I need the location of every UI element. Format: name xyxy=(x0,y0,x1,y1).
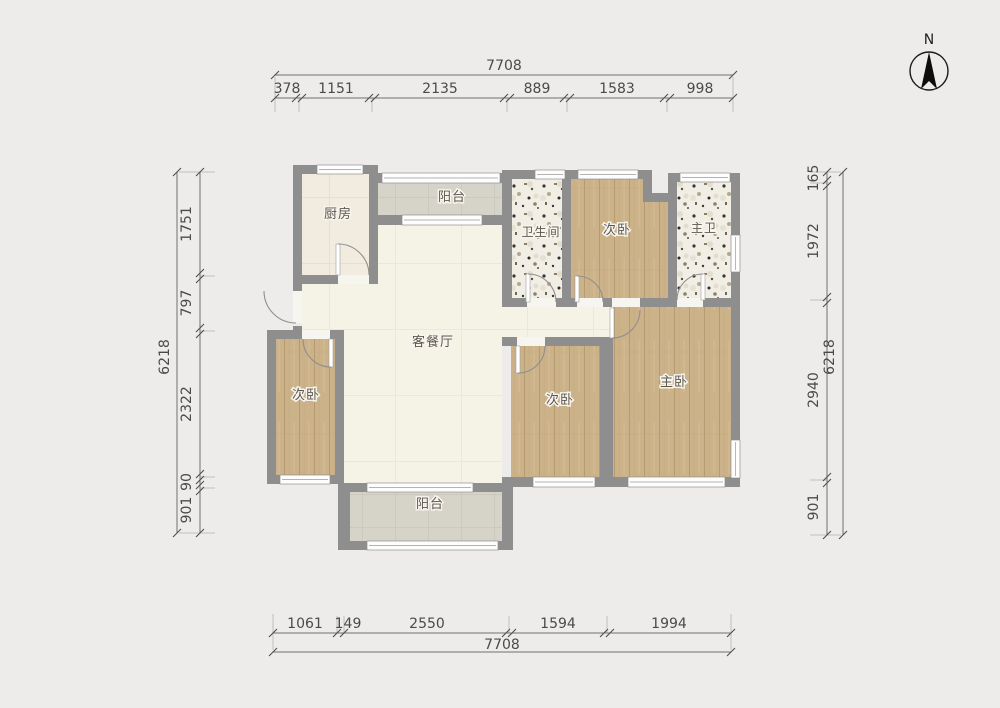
bedroom-top-door-opening xyxy=(577,298,603,307)
kitchen-door-leaf xyxy=(336,244,340,275)
north-arrow-icon xyxy=(921,52,937,89)
bathroom-label: 卫生间 xyxy=(521,225,560,239)
dim-bottom-total: 7708 xyxy=(484,637,520,653)
entry-door-opening xyxy=(293,291,302,323)
kitchen-floor xyxy=(302,174,369,275)
dim-left-seg-4: 901 xyxy=(179,497,195,524)
dim-bottom-seg-4: 1994 xyxy=(651,616,687,632)
dim-left-seg-1: 797 xyxy=(179,290,195,317)
master-bedroom-floor xyxy=(613,307,731,477)
wall-segment xyxy=(556,298,577,307)
dim-left-seg-3: 90 xyxy=(179,473,195,491)
dim-top-total: 7708 xyxy=(486,58,522,74)
master-bedroom-door-opening xyxy=(612,298,640,307)
wall-segment xyxy=(369,165,378,284)
wall-segment xyxy=(267,330,302,339)
entry-door-arc xyxy=(264,291,296,323)
dim-left-total: 6218 xyxy=(157,339,173,375)
dim-top-seg-0: 378 xyxy=(274,81,301,97)
master-bathroom-door-opening xyxy=(677,298,703,307)
wall-segment xyxy=(502,298,527,307)
wall-segment xyxy=(603,298,612,307)
bedroom-center-label: 次卧 xyxy=(546,392,574,407)
dim-right-seg-3: 901 xyxy=(806,494,822,521)
wall-segment xyxy=(502,337,517,346)
living-dining-label: 客餐厅 xyxy=(412,334,454,349)
dim-right-seg-2: 2940 xyxy=(806,372,822,408)
dim-bottom-seg-3: 1594 xyxy=(540,616,576,632)
wall-segment xyxy=(668,173,677,307)
wall-segment xyxy=(562,170,571,307)
balcony-top-label: 阳台 xyxy=(438,189,466,204)
dim-bottom-seg-2: 2550 xyxy=(409,616,445,632)
dim-right-total: 6218 xyxy=(822,339,838,375)
wall-segment xyxy=(502,170,512,307)
dim-bottom-seg-1: 149 xyxy=(335,616,362,632)
bathroom-door-leaf xyxy=(526,274,530,302)
floor-plan-canvas: 厨房 阳台 卫生间 次卧 主卫 客餐厅 次卧 次卧 主卧 阳台 xyxy=(0,0,1000,708)
bedroom-left-door-opening xyxy=(302,330,330,339)
master-bedroom-door-leaf xyxy=(610,308,614,338)
dim-top-seg-4: 1583 xyxy=(599,81,635,97)
dim-left-seg-0: 1751 xyxy=(179,206,195,242)
wall-segment xyxy=(338,483,350,550)
bedroom-top-door-leaf xyxy=(575,276,579,302)
dim-right-seg-1: 1972 xyxy=(806,223,822,259)
dim-left-seg-2: 2322 xyxy=(179,386,195,422)
bedroom-left-label: 次卧 xyxy=(292,387,320,402)
wall-segment xyxy=(293,165,302,293)
bedroom-center-door-leaf xyxy=(516,346,520,373)
balcony-bottom-label: 阳台 xyxy=(416,496,444,511)
bedroom-top-label: 次卧 xyxy=(603,222,631,237)
bedroom-center-floor xyxy=(511,346,600,477)
dim-right-seg-0: 165 xyxy=(806,165,822,192)
bedroom-left-door-leaf xyxy=(329,339,333,367)
kitchen-door-opening xyxy=(338,275,369,284)
wall-segment xyxy=(293,275,338,284)
wall-segment xyxy=(335,330,344,483)
dim-top-seg-2: 2135 xyxy=(422,81,458,97)
bedroom-center-door-opening xyxy=(517,337,545,346)
north-label: N xyxy=(924,32,934,48)
master-bathroom-door-leaf xyxy=(701,274,705,300)
bathroom-door-opening xyxy=(527,298,556,307)
dim-bottom-seg-0: 1061 xyxy=(287,616,323,632)
bedroom-left-floor xyxy=(276,339,335,475)
wall-segment xyxy=(600,337,613,487)
dim-top-seg-3: 889 xyxy=(524,81,551,97)
north-compass: N xyxy=(910,32,948,90)
dim-top-seg-1: 1151 xyxy=(318,81,354,97)
master-bedroom-label: 主卧 xyxy=(660,374,688,389)
dim-top-seg-5: 998 xyxy=(687,81,714,97)
wall-segment xyxy=(502,483,513,550)
floor-plan-drawing: 厨房 阳台 卫生间 次卧 主卫 客餐厅 次卧 次卧 主卧 阳台 xyxy=(0,0,1000,708)
kitchen-label: 厨房 xyxy=(324,206,352,221)
master-bathroom-label: 主卫 xyxy=(691,221,717,235)
wall-segment xyxy=(267,330,276,484)
